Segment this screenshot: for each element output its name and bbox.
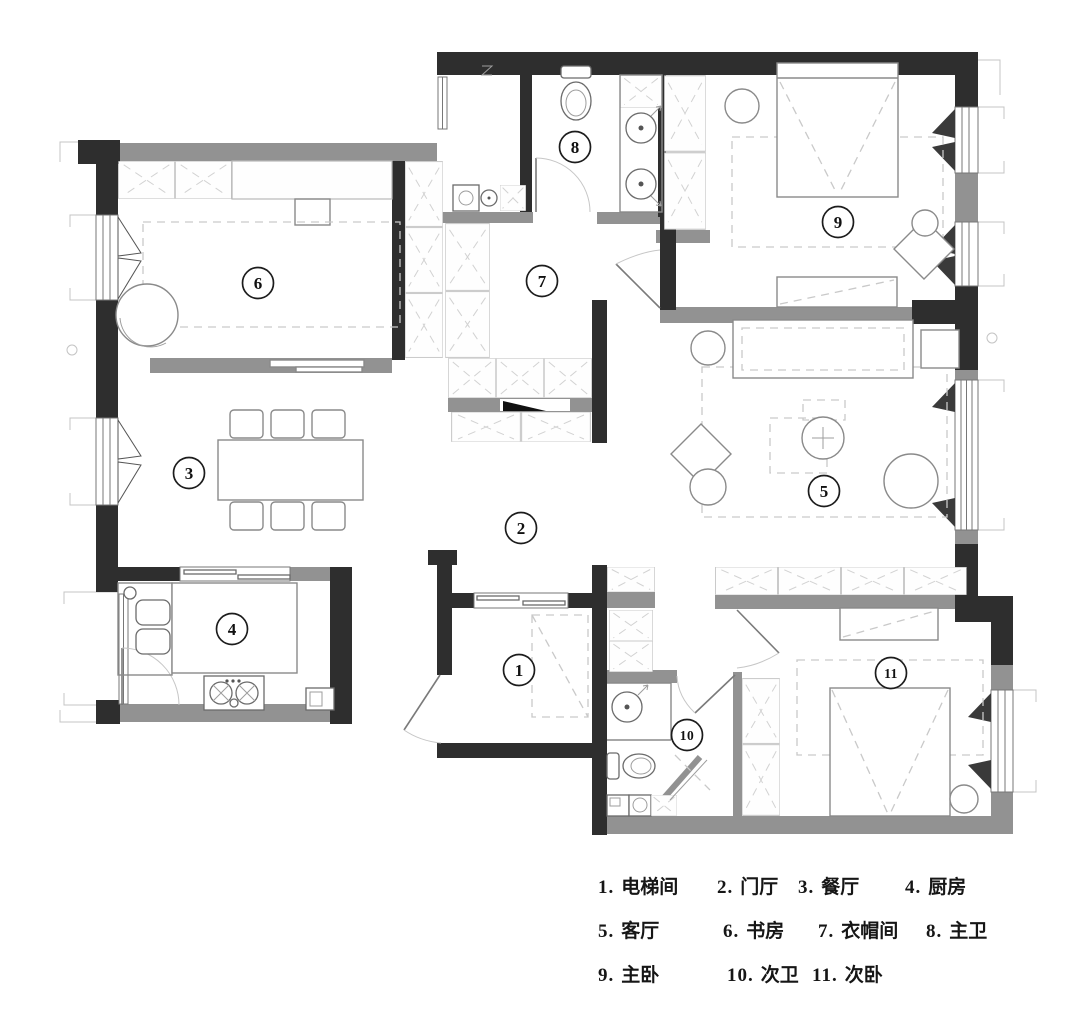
room-badge-10: 10: [672, 720, 703, 751]
legend-label: 餐厅: [821, 877, 859, 898]
legend-label: 书房: [746, 921, 784, 942]
stove: [204, 676, 264, 710]
elevator-door: [474, 593, 568, 608]
legend-label: 电梯间: [621, 877, 678, 898]
dining-window: [96, 418, 141, 505]
study-wall-stub: [295, 199, 330, 225]
legend-label: 门厅: [740, 877, 778, 898]
legend-label: 次卧: [845, 965, 883, 986]
room-badge-8: 8: [560, 132, 591, 163]
master-bedroom-window-1: [932, 107, 978, 173]
second-bedroom-door: [737, 610, 779, 668]
legend-label: 主卧: [621, 965, 659, 986]
legend-number: 2.: [717, 877, 733, 898]
legend-number: 7.: [818, 921, 834, 942]
living-room-window: [932, 380, 978, 530]
second-bath-door: [677, 675, 735, 713]
legend-label: 厨房: [928, 877, 966, 898]
elevator-car: [532, 615, 588, 717]
room-badge-9: 9: [823, 207, 854, 238]
room-badge-2: 2: [506, 513, 537, 544]
legend-item-7: 7.衣帽间: [818, 916, 898, 943]
svg-text:10: 10: [680, 728, 695, 743]
svg-text:5: 5: [820, 482, 829, 501]
second-bedroom-furniture: [797, 608, 983, 816]
dining-set: [218, 410, 363, 530]
room-badge-5: 5: [809, 476, 840, 507]
svg-text:7: 7: [538, 272, 547, 291]
legend-item-10: 10.次卫: [727, 960, 799, 987]
legend-item-2: 2.门厅: [717, 872, 778, 899]
svg-text:4: 4: [228, 620, 237, 639]
svg-text:1: 1: [515, 661, 524, 680]
master-bath-door: [536, 158, 590, 212]
room-badge-3: 3: [174, 458, 205, 489]
legend-number: 10.: [727, 965, 754, 986]
legend-label: 主卫: [949, 921, 987, 942]
legend-number: 8.: [926, 921, 942, 942]
svg-text:6: 6: [254, 274, 263, 293]
legend-number: 5.: [598, 921, 614, 942]
legend-number: 4.: [905, 877, 921, 898]
master-bedroom-door: [616, 250, 660, 308]
legend-item-9: 9.主卧: [598, 960, 659, 987]
room-badge-1: 1: [504, 655, 535, 686]
legend-item-4: 4.厨房: [905, 872, 966, 899]
legend-number: 9.: [598, 965, 614, 986]
foyer-marker: [500, 399, 570, 411]
legend-item-3: 3.餐厅: [798, 872, 859, 899]
legend-item-1: 1.电梯间: [598, 872, 678, 899]
svg-text:9: 9: [834, 213, 843, 232]
legend-label: 客厅: [621, 921, 659, 942]
svg-text:8: 8: [571, 138, 580, 157]
entrance-door: [404, 675, 441, 743]
laundry-fixtures: [453, 66, 526, 211]
kitchen-window: [119, 594, 128, 704]
kitchen-sliding-door: [180, 567, 290, 581]
kitchen-fixtures: [118, 583, 334, 710]
legend-number: 1.: [598, 877, 614, 898]
legend-item-11: 11.次卧: [812, 960, 883, 987]
room-badge-7: 7: [527, 266, 558, 297]
svg-text:2: 2: [517, 519, 526, 538]
master-bedroom-furniture: [725, 63, 954, 307]
svg-text:11: 11: [884, 666, 898, 681]
svg-text:3: 3: [185, 464, 194, 483]
legend-item-8: 8.主卫: [926, 916, 987, 943]
legend-label: 次卫: [761, 965, 799, 986]
legend-label: 衣帽间: [841, 921, 898, 942]
room-badge-11: 11: [876, 658, 907, 689]
legend-number: 11.: [812, 965, 838, 986]
legend-item-5: 5.客厅: [598, 916, 659, 943]
legend-item-6: 6.书房: [723, 916, 784, 943]
floor-plan-page: 1 2 3 4 5 6 7 8: [0, 0, 1080, 1013]
legend-number: 6.: [723, 921, 739, 942]
room-badge-4: 4: [217, 614, 248, 645]
kitchen-door: [122, 648, 179, 705]
floor-plan-drawing: 1 2 3 4 5 6 7 8: [0, 0, 1080, 1013]
room-badge-6: 6: [243, 268, 274, 299]
second-bedroom-window: [968, 690, 1013, 792]
legend-number: 3.: [798, 877, 814, 898]
